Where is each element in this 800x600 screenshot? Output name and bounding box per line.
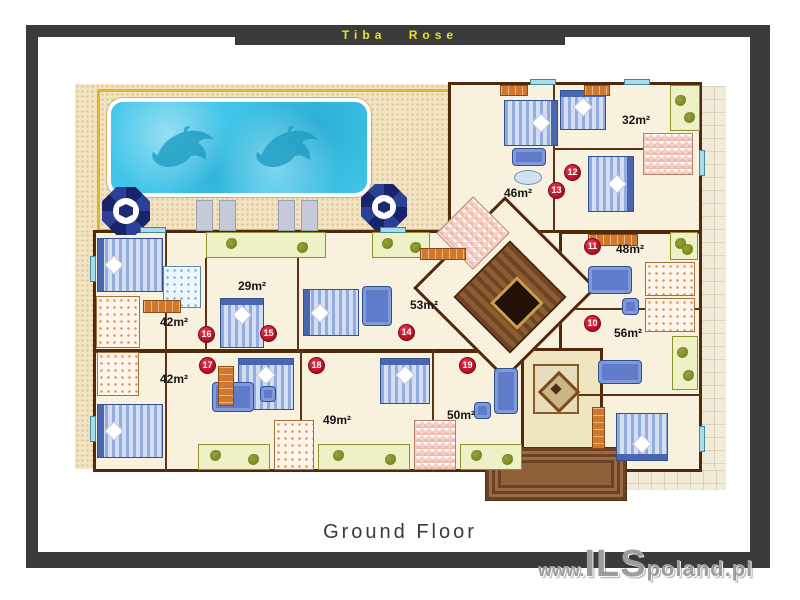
unit-marker: 10	[584, 315, 601, 332]
room-label: 42m²	[160, 315, 188, 329]
room-label: 56m²	[614, 326, 642, 340]
unit-marker: 15	[260, 325, 277, 342]
room-label: 50m²	[447, 408, 475, 422]
sofa-icon	[598, 360, 642, 384]
bed-icon	[588, 156, 634, 212]
room-label: 53m²	[410, 298, 438, 312]
balcony	[670, 85, 700, 131]
sun-lounger-icon	[301, 200, 318, 231]
bathroom	[96, 296, 140, 348]
bed-icon	[220, 298, 264, 348]
bed-icon	[504, 100, 558, 146]
window	[699, 150, 705, 176]
mosaic-floor	[533, 364, 579, 414]
unit-marker: 14	[398, 324, 415, 341]
sun-lounger-icon	[196, 200, 213, 231]
bed-icon	[303, 289, 359, 336]
window	[380, 227, 406, 233]
window	[140, 227, 166, 233]
armchair-icon	[474, 402, 491, 419]
sofa-icon	[588, 266, 632, 294]
room-label: 48m²	[616, 242, 644, 256]
window	[90, 256, 96, 282]
watermark-suffix: poland.pl	[646, 556, 753, 582]
room-label: 46m²	[504, 186, 532, 200]
unit-marker: 12	[564, 164, 581, 181]
dolphin-icon	[150, 126, 226, 172]
closet	[218, 366, 234, 406]
room-label: 32m²	[622, 113, 650, 127]
unit-marker: 17	[199, 357, 216, 374]
armchair-icon	[260, 386, 276, 402]
kitchen-counter	[420, 248, 466, 260]
room-label: 49m²	[323, 413, 351, 427]
window	[699, 426, 705, 452]
unit-marker: 13	[548, 182, 565, 199]
bathroom	[643, 133, 693, 175]
swimming-pool	[107, 98, 371, 197]
unit-marker: 16	[198, 326, 215, 343]
sofa-icon	[362, 286, 392, 326]
window	[90, 416, 96, 442]
closet	[500, 85, 528, 96]
bed-icon	[560, 90, 606, 130]
bed-icon	[97, 238, 163, 292]
bathroom	[645, 298, 695, 332]
bed-icon	[380, 358, 430, 404]
watermark-prefix: www.	[538, 560, 584, 581]
bathroom	[414, 420, 456, 470]
balcony	[206, 232, 326, 258]
kitchen-counter	[592, 407, 605, 449]
balcony	[198, 444, 270, 470]
balcony	[318, 444, 410, 470]
dolphin-icon	[254, 126, 330, 172]
bathroom	[645, 262, 695, 296]
closet	[584, 85, 610, 96]
balcony	[670, 232, 698, 260]
page-title: Tiba Rose	[235, 25, 565, 45]
bed-icon	[97, 404, 163, 458]
balcony	[672, 336, 698, 390]
unit-marker: 11	[584, 238, 601, 255]
unit-marker: 18	[308, 357, 325, 374]
armchair-icon	[622, 298, 639, 315]
watermark: www.ILSpoland.pl	[538, 543, 753, 586]
bathroom	[97, 352, 139, 396]
wall	[558, 394, 702, 396]
kitchen-counter	[143, 300, 181, 313]
balcony	[460, 444, 522, 470]
unit-marker: 19	[459, 357, 476, 374]
room-label: 42m²	[160, 372, 188, 386]
watermark-brand: ILS	[584, 543, 646, 586]
floor-name-label: Ground Floor	[0, 521, 800, 544]
bathroom	[274, 420, 314, 470]
patio-right	[701, 86, 726, 472]
wall	[297, 258, 299, 352]
sun-lounger-icon	[278, 200, 295, 231]
bathtub-icon	[514, 170, 542, 185]
wall	[165, 350, 167, 472]
window	[624, 79, 650, 85]
sofa-icon	[512, 148, 546, 166]
wall	[555, 148, 645, 150]
window	[530, 79, 556, 85]
sofa-icon	[494, 368, 518, 414]
sun-lounger-icon	[219, 200, 236, 231]
bed-icon	[616, 413, 668, 461]
room-label: 29m²	[238, 279, 266, 293]
